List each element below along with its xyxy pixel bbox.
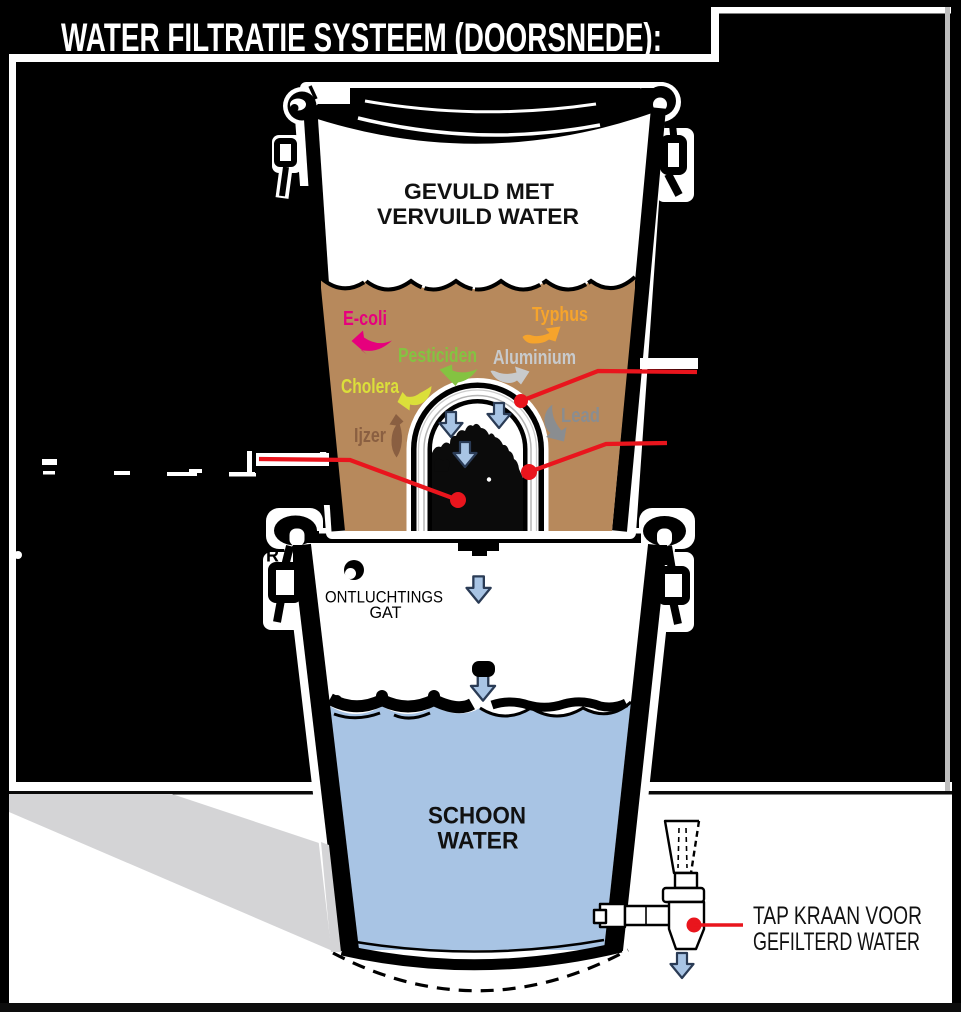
svg-text:WATER: WATER: [438, 828, 519, 855]
svg-text:Aluminium: Aluminium: [493, 347, 576, 369]
svg-text:Ijzer: Ijzer: [354, 425, 386, 447]
svg-text:GAT: GAT: [370, 603, 402, 622]
svg-text:Lead: Lead: [561, 405, 600, 427]
svg-text:WATER FILTRATIE SYSTEEM (DOORS: WATER FILTRATIE SYSTEEM (DOORSNEDE):: [61, 16, 662, 60]
svg-text:Pesticiden: Pesticiden: [398, 345, 477, 367]
svg-text:E-coli: E-coli: [343, 308, 387, 330]
svg-text:R: R: [266, 546, 279, 566]
svg-text:GEFILTERD WATER: GEFILTERD WATER: [753, 928, 920, 956]
svg-text:Cholera: Cholera: [341, 376, 400, 398]
svg-text:GEVULD MET: GEVULD MET: [404, 179, 555, 204]
svg-text:TAP KRAAN VOOR: TAP KRAAN VOOR: [753, 902, 922, 930]
svg-text:VERVUILD WATER: VERVUILD WATER: [377, 204, 579, 229]
svg-text:Typhus: Typhus: [532, 304, 588, 326]
svg-text:SCHOON: SCHOON: [428, 803, 526, 830]
